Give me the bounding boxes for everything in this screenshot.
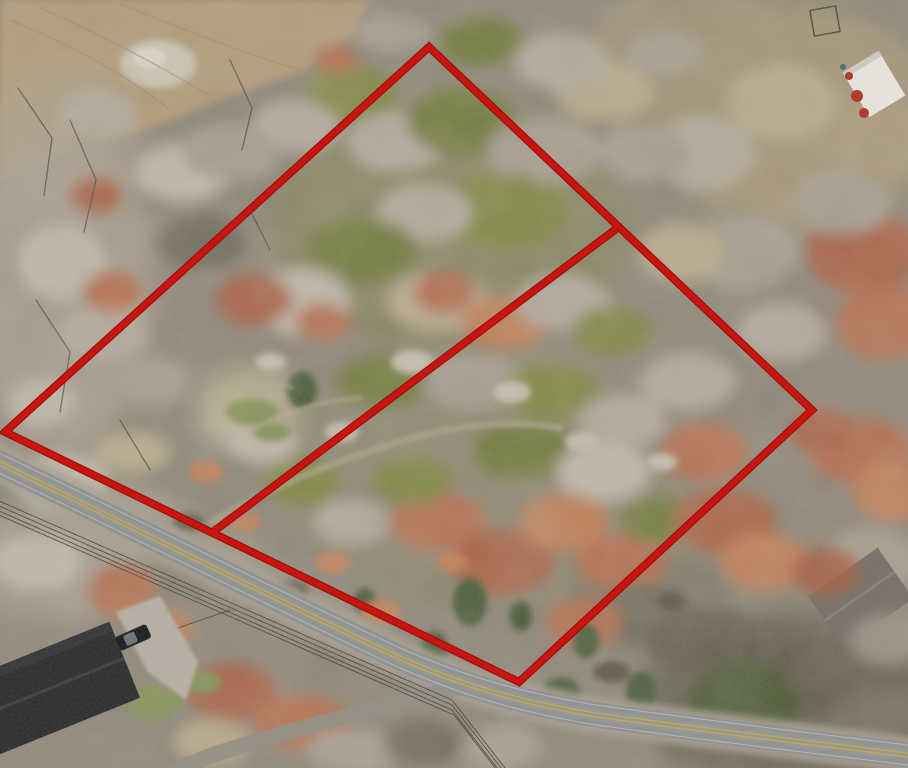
aerial-photo: [0, 0, 908, 768]
aerial-photo-frame: [0, 0, 908, 768]
